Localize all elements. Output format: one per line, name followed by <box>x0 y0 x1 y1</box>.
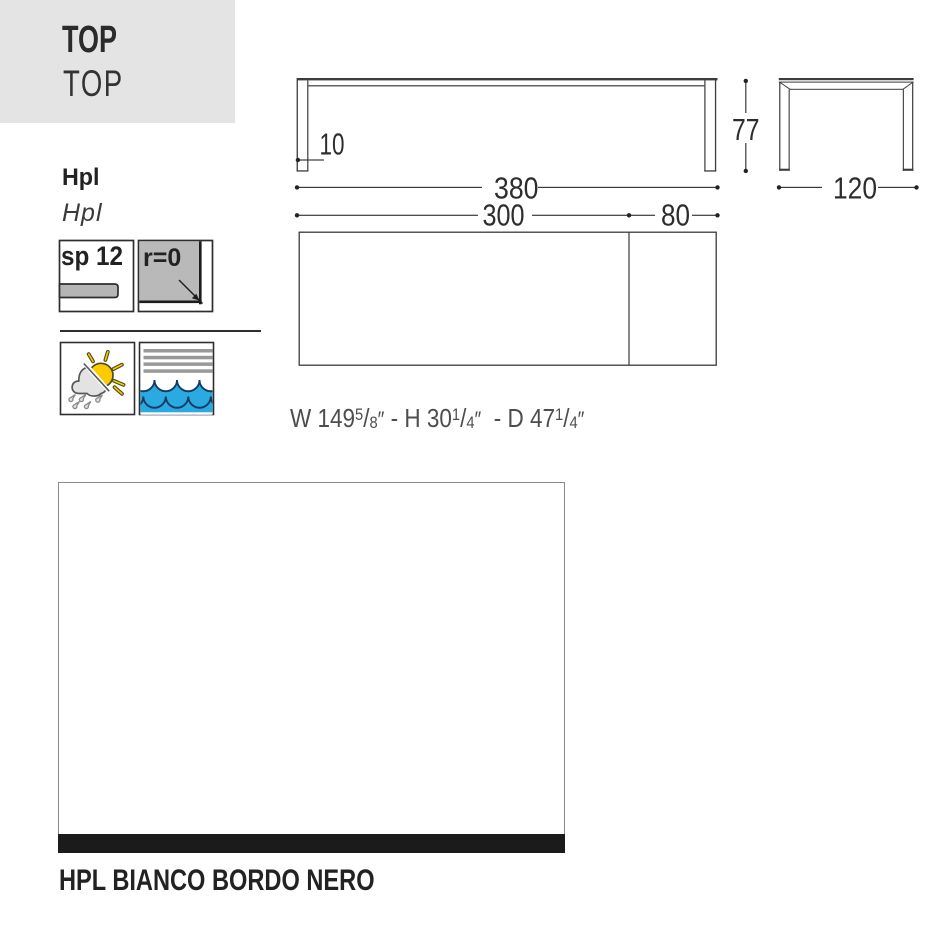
svg-text:80: 80 <box>661 198 690 233</box>
svg-text:120: 120 <box>833 170 877 205</box>
svg-text:77: 77 <box>732 112 760 147</box>
svg-text:10: 10 <box>320 127 345 162</box>
svg-text:300: 300 <box>483 198 525 233</box>
